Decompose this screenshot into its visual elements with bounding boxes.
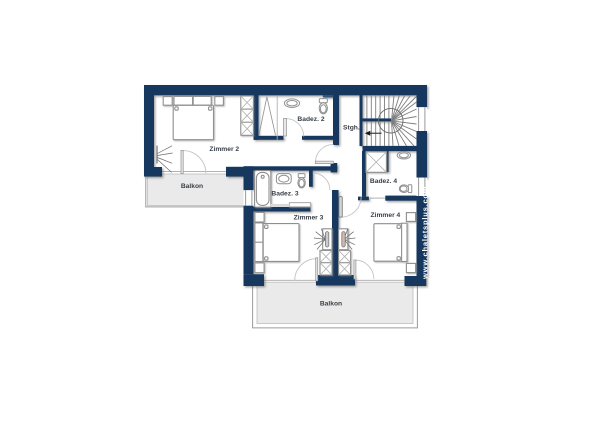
svg-text:Zimmer 4: Zimmer 4 (371, 212, 401, 219)
svg-text:Zimmer 3: Zimmer 3 (294, 215, 324, 222)
svg-text:Balkon: Balkon (320, 300, 342, 307)
svg-text:Balkon: Balkon (181, 183, 203, 190)
svg-text:Badez. 2: Badez. 2 (297, 116, 324, 123)
svg-text:Zimmer 2: Zimmer 2 (209, 146, 239, 153)
svg-text:Badez. 3: Badez. 3 (271, 191, 298, 198)
svg-text:www.chaletsplus.com: www.chaletsplus.com (420, 186, 429, 280)
svg-text:Stgh.: Stgh. (343, 124, 360, 131)
svg-text:Badez. 4: Badez. 4 (370, 178, 397, 185)
